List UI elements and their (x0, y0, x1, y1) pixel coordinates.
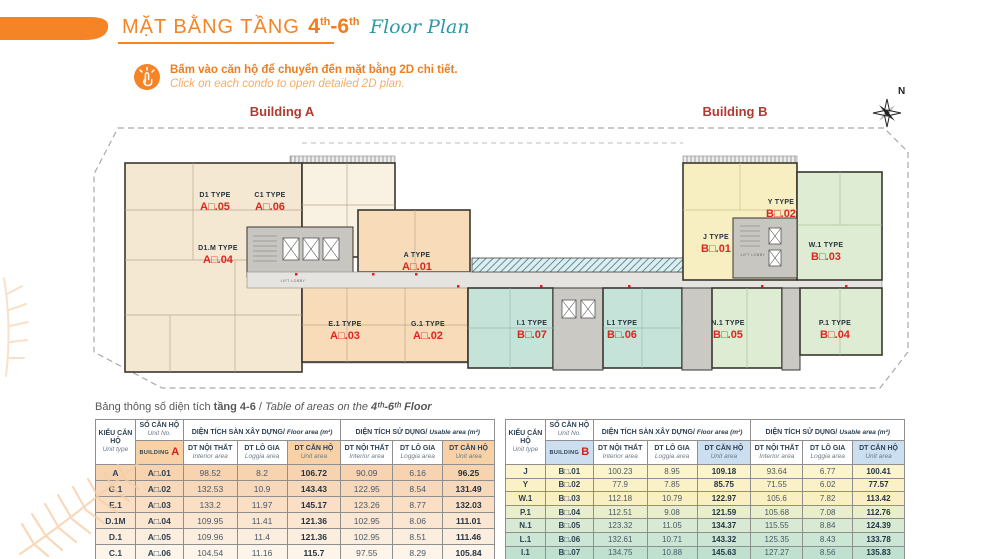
building-b-label: Building B (703, 104, 768, 119)
cell-area-value: 8.2 (237, 465, 287, 481)
cell-area-value: 102.95 (341, 529, 393, 545)
unit-type-label: N.1 TYPE (711, 320, 745, 327)
page: { "header": { "title_vi": "MẶT BẰNG TẦNG… (0, 0, 1000, 559)
cell-unit-no: B□.06 (545, 532, 593, 546)
unit-bx04[interactable]: P.1 TYPEB□.04 (819, 320, 851, 341)
cell-area-value: 85.75 (697, 478, 751, 492)
cell-area-value: 132.53 (183, 481, 237, 497)
unit-type-label: W.1 TYPE (809, 242, 844, 249)
sub-header-floor-unit-area: DT CĂN HỘUnit area (287, 441, 341, 465)
table-row: E.1A□.03133.211.97145.17123.268.77132.03 (96, 497, 495, 513)
title-vietnamese: MẶT BẰNG TẦNG (122, 16, 300, 38)
cell-area-value: 115.55 (751, 519, 803, 533)
cell-area-value: 112.18 (593, 492, 647, 506)
unit-bx05[interactable]: N.1 TYPEB□.05 (711, 320, 745, 341)
cell-unit-no: B□.01 (545, 465, 593, 479)
instruction-english: Click on each condo to open detailed 2D … (170, 77, 458, 91)
cell-area-value: 127.27 (751, 546, 803, 559)
table-row: W.1B□.03112.1810.79122.97105.67.82113.42 (506, 492, 905, 506)
cell-area-value: 10.79 (647, 492, 697, 506)
sub-header-floor-interior-area: DT NỘI THẤTInterior area (593, 441, 647, 465)
leaf-ornament-left (0, 276, 32, 378)
lift-lobby-label-b: LIFT LOBBY (741, 253, 766, 257)
click-hand-icon (133, 63, 161, 91)
unit-type-label: D1.M TYPE (198, 245, 238, 252)
cell-area-value: 11.4 (237, 529, 287, 545)
building-header-b: BUILDINGB (545, 441, 593, 465)
col-group-floor-area: DIỆN TÍCH SÀN XÂY DỰNG/ Floor area (m²) (183, 420, 341, 441)
unit-type-label: A TYPE (404, 252, 431, 259)
cell-area-value: 7.82 (803, 492, 853, 506)
sub-header-floor-loggia-area: DT LÔ GIALoggia area (647, 441, 697, 465)
sub-header-floor-loggia-area: DT LÔ GIALoggia area (237, 441, 287, 465)
cell-area-value: 8.06 (393, 513, 443, 529)
cell-area-value: 90.09 (341, 465, 393, 481)
cell-area-value: 8.43 (803, 532, 853, 546)
cell-area-value: 6.16 (393, 465, 443, 481)
cell-area-value: 10.88 (647, 546, 697, 559)
unit-type-label: E.1 TYPE (328, 321, 361, 328)
sub-header-usable-interior-area: DT NỘI THẤTInterior area (751, 441, 803, 465)
unit-type-label: P.1 TYPE (819, 320, 851, 327)
page-title: MẶT BẰNG TẦNG 4th-6th Floor Plan (122, 15, 470, 39)
cell-area-value: 93.64 (751, 465, 803, 479)
cell-area-value: 8.77 (393, 497, 443, 513)
cell-area-value: 143.43 (287, 481, 341, 497)
sub-header-floor-unit-area: DT CĂN HỘUnit area (697, 441, 751, 465)
unit-number-label: A□.05 (200, 201, 230, 213)
unit-type-label: D1 TYPE (199, 192, 230, 199)
cell-area-value: 100.23 (593, 465, 647, 479)
unit-bx03[interactable]: W.1 TYPEB□.03 (809, 242, 844, 263)
unit-number-label: A□.01 (402, 261, 432, 273)
col-group-floor-area: DIỆN TÍCH SÀN XÂY DỰNG/ Floor area (m²) (593, 420, 751, 441)
area-table-a: KIỂU CĂN HỘUnit typeSỐ CĂN HỘUnit No.DIỆ… (95, 419, 495, 559)
cell-area-value: 8.51 (393, 529, 443, 545)
cell-area-value: 124.39 (853, 519, 905, 533)
cell-area-value: 7.08 (803, 505, 853, 519)
cell-area-value: 145.63 (697, 546, 751, 559)
cell-unit-no: B□.05 (545, 519, 593, 533)
table-row: YB□.0277.97.8585.7571.556.0277.57 (506, 478, 905, 492)
leaf-ornament-bottom (12, 452, 152, 559)
cell-area-value: 132.03 (443, 497, 495, 513)
unit-number-label: B□.05 (713, 329, 743, 341)
unit-number-label: B□.07 (517, 329, 547, 341)
unit-number-label: B□.01 (701, 243, 731, 255)
title-underline (118, 42, 334, 44)
sub-header-usable-loggia-area: DT LÔ GIALoggia area (393, 441, 443, 465)
cell-area-value: 122.95 (341, 481, 393, 497)
cell-area-value: 134.37 (697, 519, 751, 533)
cell-area-value: 134.75 (593, 546, 647, 559)
cell-area-value: 121.59 (697, 505, 751, 519)
cell-area-value: 105.68 (751, 505, 803, 519)
cell-area-value: 11.05 (647, 519, 697, 533)
unit-type-label: I.1 TYPE (517, 320, 547, 327)
cell-area-value: 9.08 (647, 505, 697, 519)
col-group-usable-area: DIỆN TÍCH SỬ DỤNG/ Usable area (m²) (341, 420, 495, 441)
cell-area-value: 131.49 (443, 481, 495, 497)
area-table-building-b: KIỂU CĂN HỘUnit typeSỐ CĂN HỘUnit No.DIỆ… (505, 419, 905, 559)
unit-number-label: A□.06 (255, 201, 285, 213)
table-row: D.1A□.05109.9611.4121.36102.958.51111.46 (96, 529, 495, 545)
unit-number-label: A□.03 (330, 330, 360, 342)
cell-area-value: 96.25 (443, 465, 495, 481)
unit-number-label: B□.03 (811, 251, 841, 263)
col-header-unit-type: KIỂU CĂN HỘUnit type (506, 420, 546, 465)
unit-bx02[interactable]: Y TYPEB□.02 (766, 199, 796, 220)
sub-header-usable-unit-area: DT CĂN HỘUnit area (443, 441, 495, 465)
col-header-unit-no: SỐ CĂN HỘUnit No. (545, 420, 593, 441)
header-ribbon (0, 16, 112, 42)
cell-area-value: 135.83 (853, 546, 905, 559)
unit-number-label: A□.02 (413, 330, 443, 342)
table-row: I.1B□.07134.7510.88145.63127.278.56135.8… (506, 546, 905, 559)
unit-number-label: B□.04 (820, 329, 851, 341)
cell-area-value: 123.26 (341, 497, 393, 513)
unit-number-label: A□.04 (203, 254, 234, 266)
cell-area-value: 109.18 (697, 465, 751, 479)
unit-bx07[interactable]: I.1 TYPEB□.07 (517, 320, 547, 341)
unit-type-label: Y TYPE (768, 199, 795, 206)
cell-area-value: 8.29 (393, 545, 443, 559)
unit-type-label: L1 TYPE (607, 320, 638, 327)
cell-unit-no: B□.03 (545, 492, 593, 506)
cell-area-value: 115.7 (287, 545, 341, 559)
unit-bx01[interactable]: J TYPEB□.01 (701, 234, 731, 255)
unit-ax06[interactable]: C1 TYPEA□.06 (254, 192, 285, 213)
col-header-unit-no: SỐ CĂN HỘUnit No. (135, 420, 183, 441)
instruction-text: Bấm vào căn hộ để chuyển đến mặt bằng 2D… (170, 63, 458, 91)
table-row: L.1B□.06132.6110.71143.32125.358.43133.7… (506, 532, 905, 546)
core-b: LIFT LOBBY (733, 218, 797, 278)
cell-area-value: 77.57 (853, 478, 905, 492)
cell-area-value: 6.77 (803, 465, 853, 479)
table-row: N.1B□.05123.3211.05134.37115.558.84124.3… (506, 519, 905, 533)
title-floor-range: 4th-6th (308, 15, 359, 38)
cell-area-value: 113.42 (853, 492, 905, 506)
col-group-usable-area: DIỆN TÍCH SỬ DỤNG/ Usable area (m²) (751, 420, 905, 441)
cell-area-value: 11.16 (237, 545, 287, 559)
cell-area-value: 97.55 (341, 545, 393, 559)
building-a-label: Building A (250, 104, 315, 119)
cell-area-value: 104.54 (183, 545, 237, 559)
unit-ax05[interactable]: D1 TYPEA□.05 (199, 192, 230, 213)
title-english: Floor Plan (370, 16, 470, 38)
area-table-building-a: KIỂU CĂN HỘUnit typeSỐ CĂN HỘUnit No.DIỆ… (95, 419, 495, 559)
cell-unit-type: J (506, 465, 546, 479)
unit-ax03[interactable]: E.1 TYPEA□.03 (328, 321, 361, 342)
cell-area-value: 10.9 (237, 481, 287, 497)
unit-number-label: B□.06 (607, 329, 637, 341)
unit-ax02[interactable]: G.1 TYPEA□.02 (411, 321, 445, 342)
unit-type-label: G.1 TYPE (411, 321, 445, 328)
cell-area-value: 143.32 (697, 532, 751, 546)
cell-area-value: 11.41 (237, 513, 287, 529)
connecting-walkway (472, 258, 683, 272)
instruction-note: Bấm vào căn hộ để chuyển đến mặt bằng 2D… (133, 63, 458, 91)
cell-unit-no: B□.07 (545, 546, 593, 559)
cell-unit-type: N.1 (506, 519, 546, 533)
cell-area-value: 10.71 (647, 532, 697, 546)
cell-area-value: 122.97 (697, 492, 751, 506)
cell-area-value: 8.84 (803, 519, 853, 533)
unit-ax01[interactable]: A TYPEA□.01 (402, 252, 432, 273)
unit-ax04[interactable]: D1.M TYPEA□.04 (198, 245, 238, 266)
lift-lobby-label-a: LIFT LOBBY (281, 279, 306, 283)
cell-area-value: 121.36 (287, 529, 341, 545)
cell-area-value: 132.61 (593, 532, 647, 546)
unit-number-label: B□.02 (766, 208, 796, 220)
table-row: AA□.0198.528.2106.7290.096.1696.25 (96, 465, 495, 481)
floor-plan: Building A Building B (85, 100, 915, 395)
table-row: D.1MA□.04109.9511.41121.36102.958.06111.… (96, 513, 495, 529)
cell-area-value: 8.95 (647, 465, 697, 479)
cell-area-value: 109.96 (183, 529, 237, 545)
cell-unit-type: Y (506, 478, 546, 492)
cell-area-value: 7.85 (647, 478, 697, 492)
sub-header-usable-loggia-area: DT LÔ GIALoggia area (803, 441, 853, 465)
cell-area-value: 111.46 (443, 529, 495, 545)
area-table-b: KIỂU CĂN HỘUnit typeSỐ CĂN HỘUnit No.DIỆ… (505, 419, 905, 559)
cell-area-value: 145.17 (287, 497, 341, 513)
table-row: P.1B□.04112.519.08121.59105.687.08112.76 (506, 505, 905, 519)
cell-area-value: 102.95 (341, 513, 393, 529)
cell-area-value: 8.54 (393, 481, 443, 497)
cell-unit-type: I.1 (506, 546, 546, 559)
cell-area-value: 98.52 (183, 465, 237, 481)
cell-area-value: 106.72 (287, 465, 341, 481)
cell-area-value: 125.35 (751, 532, 803, 546)
unit-bx06[interactable]: L1 TYPEB□.06 (607, 320, 638, 341)
cell-unit-type: W.1 (506, 492, 546, 506)
ribbon-shape (0, 16, 112, 42)
cell-area-value: 133.78 (853, 532, 905, 546)
cell-area-value: 100.41 (853, 465, 905, 479)
sub-header-usable-interior-area: DT NỘI THẤTInterior area (341, 441, 393, 465)
sub-header-usable-unit-area: DT CĂN HỘUnit area (853, 441, 905, 465)
unit-type-label: J TYPE (703, 234, 729, 241)
cell-area-value: 77.9 (593, 478, 647, 492)
cell-area-value: 121.36 (287, 513, 341, 529)
table-row: G.1A□.02132.5310.9143.43122.958.54131.49 (96, 481, 495, 497)
cell-area-value: 123.32 (593, 519, 647, 533)
cell-unit-no: B□.02 (545, 478, 593, 492)
sub-header-floor-interior-area: DT NỘI THẤTInterior area (183, 441, 237, 465)
cell-unit-no: B□.04 (545, 505, 593, 519)
instruction-vietnamese: Bấm vào căn hộ để chuyển đến mặt bằng 2D… (170, 63, 458, 77)
cell-area-value: 105.84 (443, 545, 495, 559)
compass-north-label: N (898, 86, 905, 97)
cell-area-value: 8.56 (803, 546, 853, 559)
cell-area-value: 109.95 (183, 513, 237, 529)
cell-area-value: 133.2 (183, 497, 237, 513)
cell-area-value: 6.02 (803, 478, 853, 492)
cell-area-value: 112.76 (853, 505, 905, 519)
core-a (247, 227, 353, 277)
cell-unit-type: L.1 (506, 532, 546, 546)
cell-area-value: 11.97 (237, 497, 287, 513)
cell-area-value: 111.01 (443, 513, 495, 529)
unit-type-label: C1 TYPE (254, 192, 285, 199)
table-caption: Bảng thông số diện tích tầng 4-6 / Table… (95, 401, 432, 413)
cell-area-value: 112.51 (593, 505, 647, 519)
cell-unit-type: P.1 (506, 505, 546, 519)
table-row: JB□.01100.238.95109.1893.646.77100.41 (506, 465, 905, 479)
table-row: C.1A□.06104.5411.16115.797.558.29105.84 (96, 545, 495, 559)
cell-area-value: 105.6 (751, 492, 803, 506)
cell-area-value: 71.55 (751, 478, 803, 492)
